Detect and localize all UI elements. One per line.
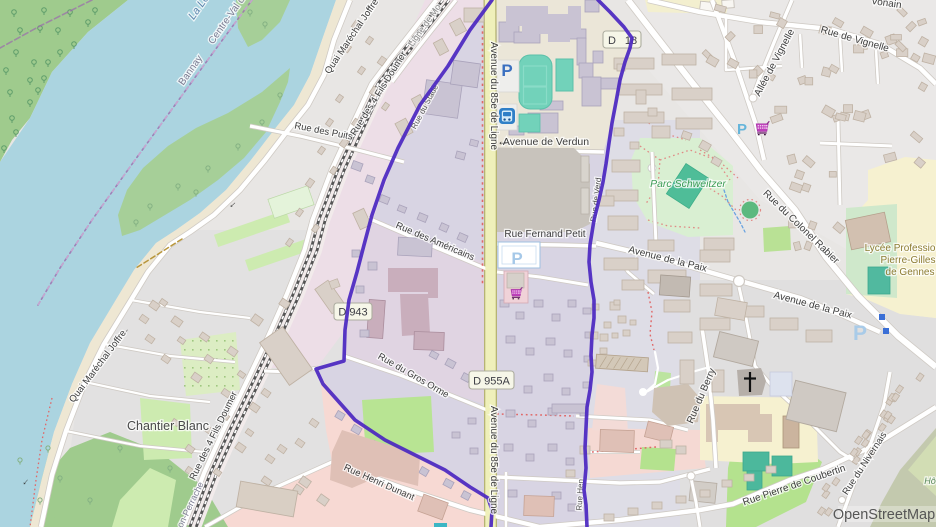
svg-text:Avenue du 85e de Ligne: Avenue du 85e de Ligne xyxy=(488,406,499,515)
svg-text:Hô: Hô xyxy=(924,476,936,486)
svg-text:P: P xyxy=(501,61,512,80)
svg-text:Avenue de Verdun: Avenue de Verdun xyxy=(503,136,589,148)
svg-text:←: ← xyxy=(497,134,509,148)
svg-text:Pierre-Gilles: Pierre-Gilles xyxy=(880,255,935,266)
svg-text:D 943: D 943 xyxy=(338,307,367,319)
svg-text:P: P xyxy=(737,121,747,138)
svg-text:Lycée Professio: Lycée Professio xyxy=(865,243,936,254)
svg-text:OpenStreetMap: OpenStreetMap xyxy=(833,507,935,523)
svg-text:Rue Fernand Petit: Rue Fernand Petit xyxy=(504,229,585,240)
svg-text:de Gennes: de Gennes xyxy=(886,267,935,278)
svg-text:P: P xyxy=(853,322,867,345)
svg-text:D: D xyxy=(608,35,616,47)
svg-text:D 955A: D 955A xyxy=(473,376,510,388)
svg-text:Chantier Blanc: Chantier Blanc xyxy=(127,419,209,433)
svg-text:Parc Schweitzer: Parc Schweitzer xyxy=(650,178,726,190)
svg-text:P: P xyxy=(511,249,522,268)
